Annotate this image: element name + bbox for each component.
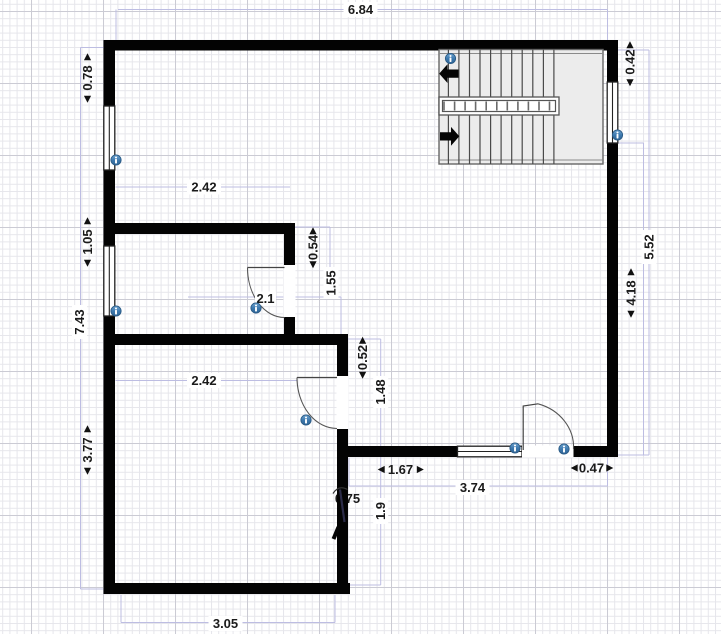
svg-text:3.74: 3.74	[460, 480, 486, 495]
svg-text:2.42: 2.42	[191, 180, 216, 195]
svg-text:1.55: 1.55	[324, 270, 339, 295]
svg-text:3.77: 3.77	[80, 437, 95, 462]
svg-text:1.05: 1.05	[80, 229, 95, 254]
svg-text:2.42: 2.42	[191, 373, 216, 388]
svg-text:3.05: 3.05	[213, 616, 238, 631]
svg-text:5.52: 5.52	[642, 234, 657, 259]
svg-text:0.54: 0.54	[306, 234, 321, 260]
svg-text:0.78: 0.78	[80, 65, 95, 90]
svg-text:1.67: 1.67	[388, 462, 413, 477]
svg-text:6.84: 6.84	[348, 2, 374, 17]
svg-text:1.48: 1.48	[373, 379, 388, 404]
svg-text:4.18: 4.18	[624, 280, 639, 305]
svg-text:0.47: 0.47	[579, 461, 604, 476]
svg-text:7.43: 7.43	[72, 309, 87, 334]
svg-text:0.52: 0.52	[355, 345, 370, 370]
svg-text:1.9: 1.9	[373, 502, 388, 520]
svg-text:0.42: 0.42	[623, 49, 638, 74]
